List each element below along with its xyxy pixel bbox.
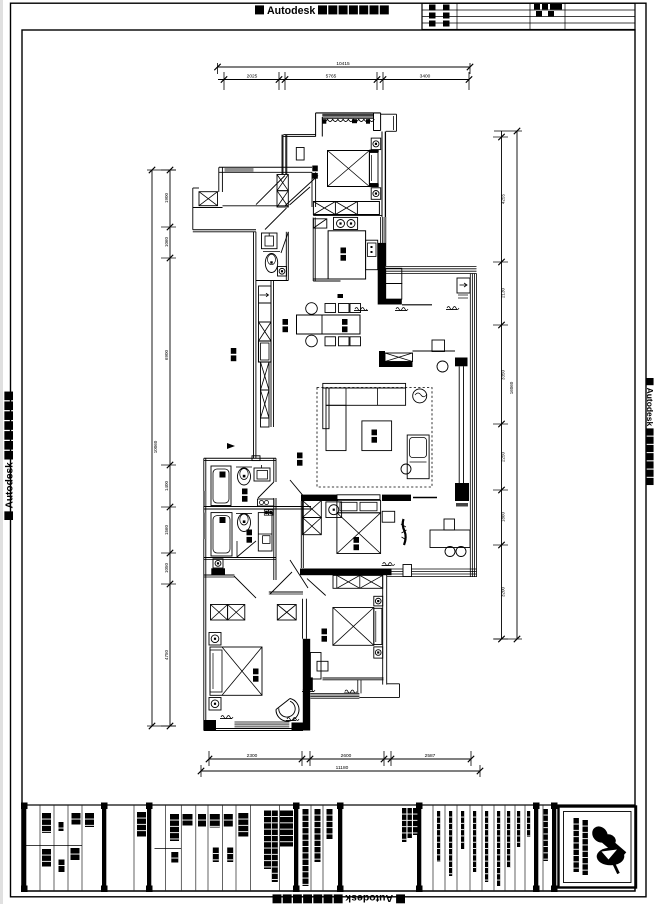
svg-text:2587: 2587 xyxy=(425,753,436,759)
svg-text:11180: 11180 xyxy=(336,765,349,771)
svg-text:2025: 2025 xyxy=(247,74,258,80)
svg-text:1050: 1050 xyxy=(164,562,169,573)
svg-text:4255: 4255 xyxy=(501,193,506,204)
svg-text:Autodesk: Autodesk xyxy=(345,892,393,903)
svg-text:6900: 6900 xyxy=(164,349,169,360)
svg-text:1560: 1560 xyxy=(164,524,169,535)
svg-text:2250: 2250 xyxy=(501,451,506,462)
svg-text:2130: 2130 xyxy=(501,287,506,298)
svg-text:1060: 1060 xyxy=(164,236,169,247)
svg-text:1860: 1860 xyxy=(501,511,506,522)
svg-text:10060: 10060 xyxy=(153,440,158,453)
svg-text:Autodesk: Autodesk xyxy=(267,5,315,17)
svg-text:Autodesk: Autodesk xyxy=(645,388,655,427)
svg-text:1400: 1400 xyxy=(164,480,169,491)
svg-text:1900: 1900 xyxy=(164,192,169,203)
svg-text:3350: 3350 xyxy=(501,369,506,380)
svg-text:2300: 2300 xyxy=(247,753,258,759)
svg-text:3400: 3400 xyxy=(420,74,431,80)
svg-text:5765: 5765 xyxy=(326,74,337,80)
svg-text:3200: 3200 xyxy=(501,586,506,597)
svg-text:10415: 10415 xyxy=(336,61,350,67)
svg-text:16060: 16060 xyxy=(509,381,514,394)
svg-text:4750: 4750 xyxy=(164,649,169,660)
svg-text:Autodesk: Autodesk xyxy=(4,462,15,509)
svg-text:2600: 2600 xyxy=(341,753,352,759)
